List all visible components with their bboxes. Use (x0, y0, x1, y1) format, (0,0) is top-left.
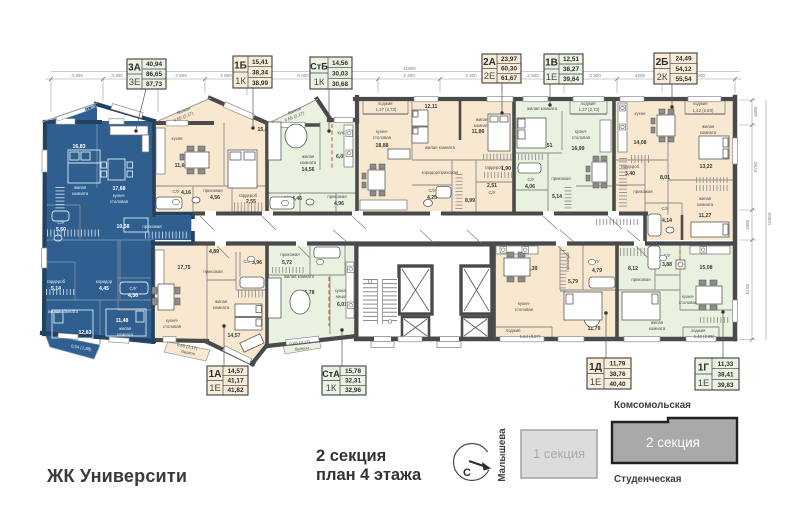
svg-text:жилая: жилая (702, 124, 715, 129)
svg-text:18,88: 18,88 (376, 143, 389, 149)
svg-text:14,57: 14,57 (228, 368, 244, 375)
svg-text:прихожая: прихожая (633, 189, 653, 194)
svg-text:38,34: 38,34 (252, 70, 268, 77)
svg-text:16,99: 16,99 (572, 146, 585, 152)
svg-text:С/У: С/У (527, 177, 534, 182)
svg-text:столовая: столовая (163, 324, 182, 329)
svg-text:1608: 1608 (753, 106, 758, 117)
svg-text:ЖК Университи: ЖК Университи (46, 466, 187, 486)
svg-text:12,51: 12,51 (563, 56, 579, 63)
svg-text:15,08: 15,08 (700, 265, 713, 271)
svg-text:11,86: 11,86 (472, 129, 485, 135)
svg-text:8,12: 8,12 (628, 266, 638, 272)
svg-text:1Б: 1Б (234, 61, 247, 72)
svg-text:2Б: 2Б (656, 57, 669, 68)
svg-text:столовая: столовая (572, 135, 591, 140)
svg-text:кухня-: кухня- (376, 129, 389, 134)
svg-text:41,82: 41,82 (228, 387, 244, 394)
svg-text:Студенческая: Студенческая (614, 474, 682, 485)
svg-text:3 600: 3 600 (175, 73, 187, 78)
svg-text:13,22: 13,22 (700, 164, 713, 170)
svg-text:1,37 (2,73): 1,37 (2,73) (376, 107, 397, 112)
svg-text:11,48: 11,48 (116, 318, 129, 324)
svg-text:14,08: 14,08 (634, 140, 647, 146)
svg-text:кухня-: кухня- (113, 193, 126, 198)
svg-text:коридор/прихожая: коридор/прихожая (422, 170, 459, 175)
svg-text:жилая: жилая (215, 299, 228, 304)
svg-text:прихожая: прихожая (565, 252, 570, 272)
svg-text:41800: 41800 (403, 66, 416, 71)
svg-text:СтБ: СтБ (310, 62, 328, 72)
svg-text:1К: 1К (326, 383, 337, 394)
svg-text:16,83: 16,83 (73, 144, 86, 150)
svg-text:40,94: 40,94 (146, 61, 162, 68)
svg-text:жилая комната: жилая комната (425, 145, 456, 150)
svg-text:столовая: столовая (679, 300, 698, 305)
svg-text:12,63: 12,63 (79, 330, 92, 336)
svg-text:прихожая: прихожая (327, 194, 347, 199)
svg-text:комната: комната (72, 191, 89, 196)
svg-text:32,96: 32,96 (345, 387, 361, 394)
svg-text:1,64 (3,27): 1,64 (3,27) (520, 334, 541, 339)
svg-text:С: С (463, 467, 471, 479)
svg-text:2 секция: 2 секция (646, 435, 700, 450)
svg-text:5750: 5750 (753, 161, 758, 172)
svg-text:СтА: СтА (322, 369, 340, 379)
svg-text:1К: 1К (235, 76, 246, 87)
svg-text:жилая: жилая (699, 196, 712, 201)
svg-text:1,37 (2,73): 1,37 (2,73) (579, 107, 600, 112)
svg-text:87,73: 87,73 (146, 81, 162, 88)
svg-text:план 4 этажа: план 4 этажа (316, 466, 422, 484)
svg-text:3Е: 3Е (129, 77, 141, 88)
svg-text:15,78: 15,78 (345, 368, 361, 375)
svg-text:4,89: 4,89 (209, 249, 219, 255)
svg-text:4,56: 4,56 (210, 195, 220, 201)
svg-text:6150: 6150 (745, 283, 750, 294)
svg-text:прихожая: прихожая (631, 277, 651, 282)
svg-text:38,76: 38,76 (610, 371, 626, 378)
svg-text:лоджия: лоджия (506, 328, 522, 333)
svg-text:кухня-: кухня- (518, 301, 531, 306)
svg-text:жилая: жилая (476, 117, 489, 122)
svg-text:3А: 3А (128, 63, 141, 74)
svg-text:гардероб: гардероб (47, 279, 66, 284)
svg-text:17,75: 17,75 (178, 265, 191, 271)
svg-text:1858: 1858 (745, 219, 750, 230)
svg-text:1,90: 1,90 (501, 166, 511, 172)
svg-text:гардероб: гардероб (239, 193, 258, 198)
svg-text:1Е: 1Е (590, 377, 602, 388)
svg-text:лоджия: лоджия (378, 101, 394, 106)
svg-text:1Е: 1Е (546, 72, 558, 83)
svg-text:кухня: кухня (635, 111, 647, 116)
svg-text:С/У: С/У (172, 189, 179, 194)
svg-text:столовая: столовая (515, 307, 534, 312)
svg-text:1Е: 1Е (698, 378, 710, 389)
svg-text:8,01: 8,01 (660, 175, 670, 181)
svg-text:38,41: 38,41 (718, 372, 734, 379)
svg-text:С/У: С/У (129, 286, 136, 291)
svg-text:1В: 1В (545, 58, 558, 69)
svg-text:3 300: 3 300 (111, 73, 123, 78)
svg-text:60,30: 60,30 (501, 66, 517, 73)
svg-text:86,65: 86,65 (146, 71, 162, 78)
svg-text:3 600: 3 600 (220, 73, 232, 78)
svg-text:коридор: коридор (96, 279, 113, 284)
svg-text:3 300: 3 300 (71, 73, 83, 78)
svg-text:23,97: 23,97 (501, 56, 517, 63)
svg-text:кухня-: кухня- (575, 129, 588, 134)
svg-text:39,83: 39,83 (718, 382, 734, 389)
svg-text:4,16: 4,16 (181, 190, 191, 196)
svg-text:6,01: 6,01 (337, 302, 347, 308)
svg-text:12,11: 12,11 (425, 104, 438, 110)
svg-text:лоджия: лоджия (691, 328, 707, 333)
svg-text:прихожая: прихожая (551, 176, 571, 181)
svg-text:жилая комната: жилая комната (527, 106, 558, 111)
svg-text:32,31: 32,31 (345, 378, 361, 385)
svg-text:4,79: 4,79 (592, 268, 602, 274)
svg-text:4,06: 4,06 (525, 184, 535, 190)
svg-text:54,12: 54,12 (676, 66, 692, 73)
svg-text:ниша: ниша (336, 294, 347, 299)
svg-text:38,27: 38,27 (563, 66, 579, 73)
svg-text:С/У: С/У (488, 190, 495, 195)
svg-text:2А: 2А (483, 57, 496, 68)
svg-text:4,45: 4,45 (99, 286, 109, 292)
svg-text:11,27: 11,27 (699, 213, 712, 219)
svg-text:комната: комната (649, 326, 666, 331)
svg-text:прихожая: прихожая (142, 224, 162, 229)
svg-text:24,49: 24,49 (676, 56, 692, 63)
svg-text:11,33: 11,33 (718, 361, 734, 368)
svg-text:С/У: С/У (428, 188, 435, 193)
svg-text:41,17: 41,17 (228, 378, 244, 385)
svg-text:5,14: 5,14 (552, 194, 562, 200)
svg-text:1А: 1А (209, 369, 222, 380)
svg-text:лоджия: лоджия (693, 101, 709, 106)
svg-text:жилая: жилая (119, 326, 132, 331)
svg-text:комната: комната (697, 202, 714, 207)
svg-text:14,56: 14,56 (332, 60, 348, 67)
svg-text:6 000: 6 000 (297, 73, 309, 78)
svg-text:8,99: 8,99 (465, 198, 475, 204)
svg-text:1Е: 1Е (209, 383, 221, 394)
svg-text:5,72: 5,72 (282, 260, 292, 266)
svg-text:2К: 2К (657, 72, 668, 83)
svg-text:3 300: 3 300 (465, 73, 477, 78)
svg-text:11,79: 11,79 (610, 361, 626, 368)
svg-text:жилая: жилая (74, 185, 87, 190)
svg-text:3 300: 3 300 (589, 73, 601, 78)
svg-text:комната: комната (300, 160, 317, 165)
svg-text:2Е: 2Е (484, 71, 496, 82)
svg-text:прихожая: прихожая (280, 252, 300, 257)
svg-text:1,42 (2,83): 1,42 (2,83) (693, 108, 714, 113)
svg-text:15,41: 15,41 (252, 59, 268, 66)
svg-text:жилая комната: жилая комната (284, 274, 315, 279)
svg-text:прихожая: прихожая (203, 188, 223, 193)
svg-text:1Д: 1Д (589, 362, 602, 373)
svg-text:кухня-: кухня- (166, 318, 179, 323)
svg-text:4,96: 4,96 (334, 201, 344, 207)
svg-text:38,99: 38,99 (252, 80, 268, 87)
svg-text:14,56: 14,56 (302, 167, 315, 173)
svg-text:столовая: столовая (373, 135, 392, 140)
svg-text:прихожая: прихожая (203, 269, 223, 274)
svg-text:14,57: 14,57 (228, 333, 241, 339)
svg-text:40,40: 40,40 (610, 381, 626, 388)
svg-text:комната: комната (700, 130, 717, 135)
svg-text:2 500: 2 500 (527, 73, 539, 78)
svg-text:столовая: столовая (110, 199, 129, 204)
svg-text:10,58: 10,58 (117, 224, 130, 230)
svg-text:кухня: кухня (172, 136, 184, 141)
svg-text:1,42 (2,85): 1,42 (2,85) (694, 334, 715, 339)
svg-text:30,68: 30,68 (332, 81, 348, 88)
svg-text:кухня-: кухня- (682, 294, 695, 299)
svg-text:39,64: 39,64 (563, 76, 579, 83)
svg-text:3,88: 3,88 (662, 262, 672, 268)
svg-text:4200: 4200 (635, 73, 646, 78)
svg-text:4,14: 4,14 (662, 218, 672, 224)
svg-text:лоджия: лоджия (581, 101, 597, 106)
svg-text:2,51: 2,51 (487, 183, 497, 189)
svg-text:3 300: 3 300 (403, 73, 415, 78)
svg-text:1К: 1К (314, 77, 325, 88)
svg-text:17,68: 17,68 (113, 186, 126, 192)
svg-text:жилая: жилая (302, 154, 315, 159)
svg-text:61,67: 61,67 (501, 75, 517, 82)
svg-text:5,79: 5,79 (568, 279, 578, 285)
svg-text:1Г: 1Г (698, 363, 710, 374)
svg-text:30,03: 30,03 (332, 71, 348, 78)
svg-text:1 секция: 1 секция (533, 446, 585, 461)
svg-text:Комсомольская: Комсомольская (614, 400, 691, 411)
svg-text:С/У: С/У (661, 206, 668, 211)
svg-text:комната: комната (213, 305, 230, 310)
svg-text:55,54: 55,54 (676, 76, 692, 83)
svg-text:15550: 15550 (767, 212, 772, 225)
svg-text:2 секция: 2 секция (316, 447, 386, 465)
svg-text:жилая: жилая (651, 320, 664, 325)
